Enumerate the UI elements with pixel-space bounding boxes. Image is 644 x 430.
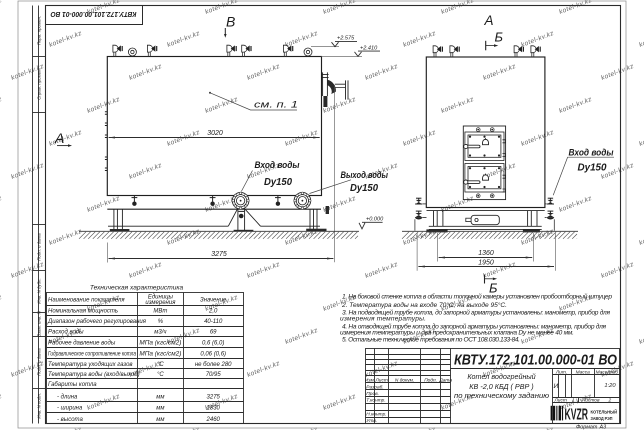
- svg-text:Рабочее давление воды: Рабочее давление воды: [48, 341, 116, 347]
- svg-text:А3: А3: [599, 425, 607, 430]
- svg-text:мм: мм: [156, 417, 164, 423]
- svg-text:%: %: [158, 319, 164, 325]
- svg-text:0,06 (0,6): 0,06 (0,6): [200, 352, 226, 358]
- svg-text:Лит.: Лит.: [555, 370, 567, 376]
- svg-text:мм: мм: [156, 395, 164, 401]
- svg-text:3020: 3020: [207, 130, 223, 137]
- svg-text:по техническому заданию: по техническому заданию: [454, 391, 550, 400]
- svg-text:1. На боковой стенке котла в: 1. На боковой стенке котла в области топ…: [342, 293, 612, 301]
- svg-text:Справ. примен.: Справ. примен.: [36, 68, 41, 100]
- svg-text:Номинальная мощность: Номинальная мощность: [48, 309, 118, 315]
- svg-text:ЗАВОД РЭП: ЗАВОД РЭП: [591, 416, 613, 422]
- svg-text:мм: мм: [156, 406, 164, 412]
- svg-text:Температура уходящих газов: Температура уходящих газов: [48, 362, 133, 368]
- svg-text:Температура воды (вход/выход): Температура воды (вход/выход): [48, 372, 140, 378]
- svg-text:Диапазон рабочего регулировани: Диапазон рабочего регулирования: [47, 319, 147, 325]
- svg-text:см. п. 1: см. п. 1: [254, 99, 298, 109]
- svg-text:Dy150: Dy150: [578, 162, 607, 173]
- svg-text:- длина: - длина: [57, 395, 78, 401]
- svg-text:КВ -2,0 КБД ( РВР ): КВ -2,0 КБД ( РВР ): [469, 382, 533, 391]
- svg-text:2: 2: [608, 398, 612, 404]
- svg-text:3275: 3275: [211, 251, 227, 258]
- svg-text:70/95: 70/95: [206, 372, 222, 378]
- svg-text:Изм.: Изм.: [365, 377, 375, 383]
- svg-text:+2.410: +2.410: [360, 45, 378, 51]
- svg-text:N докум.: N докум.: [395, 377, 414, 383]
- svg-text:Наименование показателя: Наименование показателя: [48, 298, 125, 304]
- svg-text:И: И: [554, 383, 559, 390]
- svg-text:Т.контр.: Т.контр.: [366, 397, 385, 403]
- svg-text:Лист: Лист: [554, 398, 567, 404]
- svg-text:Значение: Значение: [200, 298, 227, 304]
- svg-text:69: 69: [210, 330, 217, 336]
- svg-text:Листов: Листов: [581, 398, 600, 404]
- svg-text:Dy150: Dy150: [350, 183, 378, 194]
- svg-text:Расход воды: Расход воды: [48, 330, 84, 336]
- svg-text:0,6 (6,0): 0,6 (6,0): [202, 341, 224, 347]
- svg-text:°С: °С: [157, 372, 164, 378]
- svg-text:Утв.: Утв.: [366, 418, 377, 424]
- svg-text:измерения температуры и два пр: измерения температуры и два предохраните…: [340, 329, 574, 337]
- svg-text:1830: 1830: [207, 406, 221, 412]
- svg-text:Dy150: Dy150: [264, 177, 292, 188]
- svg-text:Масштаб: Масштаб: [596, 370, 619, 376]
- svg-text:Лист: Лист: [375, 377, 388, 383]
- svg-text:Перв. примен.: Перв. примен.: [36, 16, 41, 45]
- svg-text:КВТУ.172.101.00.000-01 ВО: КВТУ.172.101.00.000-01 ВО: [454, 353, 618, 369]
- svg-text:°С: °С: [157, 362, 164, 368]
- svg-text:Н.контр.: Н.контр.: [366, 412, 386, 418]
- svg-text:Техническая характеристика: Техническая характеристика: [90, 285, 184, 292]
- svg-text:МПа (кгс/см2): МПа (кгс/см2): [139, 352, 181, 358]
- svg-text:Гидравлическое сопротивление к: Гидравлическое сопротивление котла: [48, 352, 137, 358]
- svg-text:Пров.: Пров.: [366, 391, 379, 397]
- svg-text:Выход воды: Выход воды: [341, 170, 389, 180]
- svg-text:- высота: - высота: [57, 417, 83, 423]
- svg-text:5. Остальные технические треб: 5. Остальные технические требования по О…: [342, 336, 520, 344]
- svg-text:измерения: измерения: [145, 300, 176, 306]
- svg-text:м3/ч: м3/ч: [154, 330, 166, 336]
- svg-text:Подп. и дата: Подп. и дата: [36, 348, 41, 376]
- svg-text:Инв. N дубл.: Инв. N дубл.: [36, 278, 41, 303]
- svg-text:1: 1: [572, 398, 575, 404]
- svg-text:- ширина: - ширина: [57, 406, 83, 412]
- svg-text:Взам. инв. N: Взам. инв. N: [36, 310, 41, 336]
- svg-text:измерения температуры.: измерения температуры.: [340, 316, 426, 323]
- svg-text:+2.575: +2.575: [337, 36, 355, 42]
- svg-text:2460: 2460: [206, 417, 221, 423]
- svg-text:Подп. и дата: Подп. и дата: [36, 233, 41, 261]
- svg-text:Разраб.: Разраб.: [366, 385, 383, 391]
- svg-text:Инв. N подл.: Инв. N подл.: [36, 393, 41, 419]
- svg-text:А: А: [54, 130, 64, 146]
- svg-text:KVZR: KVZR: [565, 407, 589, 424]
- svg-text:Дата: Дата: [438, 377, 452, 383]
- svg-text:Подп.: Подп.: [424, 377, 437, 383]
- svg-text:3275: 3275: [207, 395, 221, 401]
- svg-text:1:20: 1:20: [604, 383, 616, 389]
- svg-text:Вход воды: Вход воды: [255, 160, 300, 170]
- svg-text:+0.000: +0.000: [366, 217, 384, 223]
- svg-text:Масса: Масса: [576, 370, 591, 376]
- svg-text:1360: 1360: [478, 250, 494, 257]
- svg-text:КВТУ.172.101.00.000-01 ВО: КВТУ.172.101.00.000-01 ВО: [50, 10, 136, 19]
- svg-text:Формат: Формат: [576, 425, 598, 430]
- svg-text:2,0: 2,0: [208, 309, 218, 315]
- svg-text:Вход воды: Вход воды: [569, 147, 614, 157]
- svg-text:не более 280: не более 280: [195, 362, 232, 368]
- svg-text:Габариты котла: Габариты котла: [48, 382, 97, 388]
- svg-text:В: В: [226, 14, 235, 30]
- svg-text:40-110: 40-110: [204, 319, 223, 325]
- svg-text:А: А: [484, 13, 494, 28]
- svg-text:2. Температура воды на входе: 2. Температура воды на входе 70°С, на вы…: [341, 301, 507, 309]
- svg-text:МВт: МВт: [153, 309, 167, 315]
- svg-text:Б: Б: [495, 30, 504, 45]
- svg-text:МПа (кгс/см2): МПа (кгс/см2): [139, 341, 181, 347]
- svg-text:Котел водогрейный: Котел водогрейный: [467, 372, 535, 381]
- svg-text:1950: 1950: [478, 260, 494, 267]
